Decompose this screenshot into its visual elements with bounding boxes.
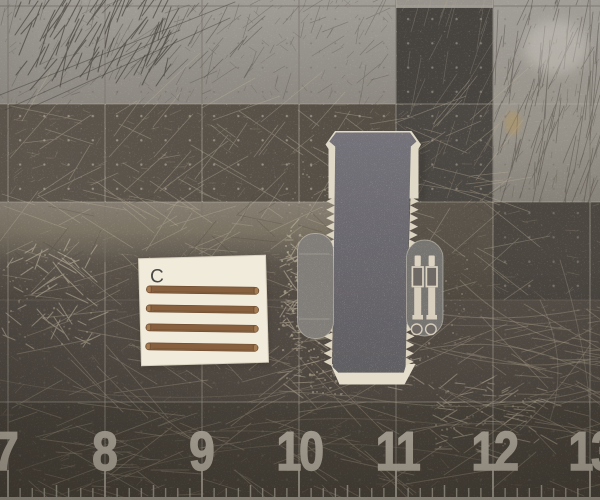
svg-text:C: C: [150, 266, 164, 287]
